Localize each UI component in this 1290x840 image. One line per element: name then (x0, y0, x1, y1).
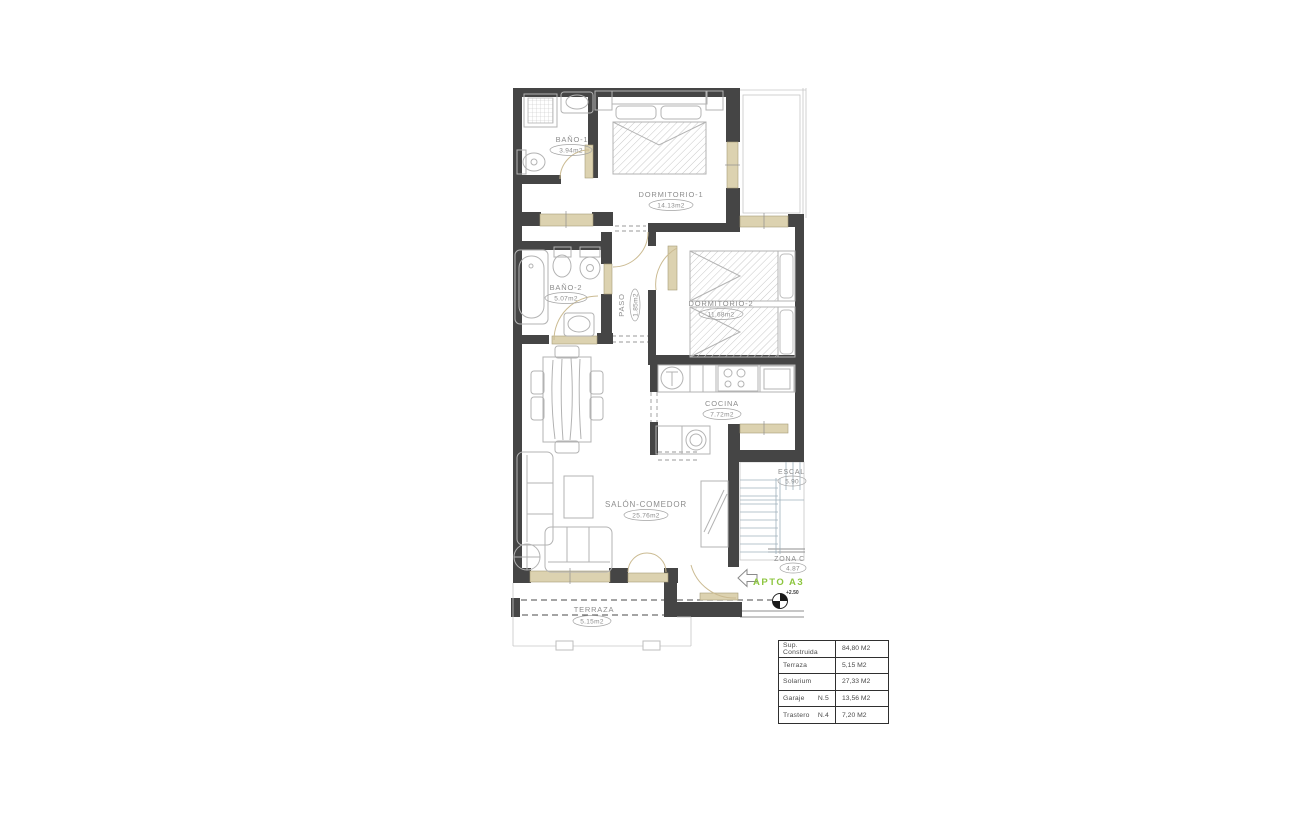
cocina-fixtures (656, 365, 795, 454)
row-label-text: Terraza (783, 662, 807, 669)
svg-text:DORMITORIO-1: DORMITORIO-1 (639, 190, 704, 199)
room-label-zona-comun: ZONA C 4.87 (774, 556, 806, 573)
row-label-text: Solarium (783, 678, 811, 685)
row-sublabel: N.5 (818, 695, 831, 702)
table-row: Terraza 5,15 M2 (779, 658, 888, 675)
row-label: GarajeN.5 (779, 691, 836, 707)
svg-text:14.13m2: 14.13m2 (657, 203, 684, 210)
svg-text:DORMITORIO-2: DORMITORIO-2 (689, 299, 754, 308)
apartment-label: APTO A3 (753, 577, 804, 588)
salon-furniture (514, 346, 728, 572)
table-row: GarajeN.5 13,56 M2 (779, 691, 888, 708)
svg-text:1.85m2: 1.85m2 (633, 293, 640, 317)
room-label-paso: PASO 1.85m2 (617, 289, 640, 321)
table-row: Sup. Construida 84,80 M2 (779, 641, 888, 658)
svg-text:ESCAL: ESCAL (778, 469, 805, 476)
row-label-text: Trastero (783, 712, 810, 719)
dorm1-bed (595, 91, 723, 174)
svg-text:COCINA: COCINA (705, 399, 739, 408)
room-label-salon: SALÓN-COMEDOR 25.76m2 (605, 500, 687, 521)
row-sublabel: N.4 (818, 712, 831, 719)
table-row: TrasteroN.4 7,20 M2 (779, 707, 888, 723)
svg-text:BAÑO-1: BAÑO-1 (556, 135, 589, 144)
room-label-cocina: COCINA 7.72m2 (703, 399, 741, 420)
row-value: 27,33 M2 (836, 674, 888, 690)
floor-plan-page: +2.50 BAÑO-1 3.94m2 DORMITORIO-1 14.13m2… (0, 0, 1290, 840)
windows-and-doors (530, 142, 788, 600)
svg-text:5.15m2: 5.15m2 (580, 619, 604, 626)
row-label-text: Garaje (783, 695, 805, 702)
row-value: 13,56 M2 (836, 691, 888, 707)
svg-text:PASO: PASO (617, 293, 626, 316)
floor-plan-drawing: +2.50 BAÑO-1 3.94m2 DORMITORIO-1 14.13m2… (0, 0, 1290, 840)
svg-text:BAÑO-2: BAÑO-2 (550, 283, 583, 292)
svg-text:7.72m2: 7.72m2 (710, 412, 734, 419)
row-value: 5,15 M2 (836, 658, 888, 674)
room-label-bano2: BAÑO-2 5.07m2 (545, 283, 587, 304)
svg-text:TERRAZA: TERRAZA (574, 605, 615, 614)
svg-text:3.94m2: 3.94m2 (559, 148, 583, 155)
svg-text:4.87: 4.87 (786, 566, 800, 573)
row-label: Solarium (779, 674, 836, 690)
svg-text:SALÓN-COMEDOR: SALÓN-COMEDOR (605, 500, 687, 509)
svg-text:11.68m2: 11.68m2 (708, 312, 735, 319)
row-label: Terraza (779, 658, 836, 674)
svg-text:ZONA C: ZONA C (774, 556, 805, 563)
level-marker: +2.50 (773, 590, 799, 609)
bano1-fixtures (517, 92, 593, 174)
room-labels: BAÑO-1 3.94m2 DORMITORIO-1 14.13m2 BAÑO-… (545, 135, 806, 627)
svg-text:5.90: 5.90 (785, 479, 799, 486)
svg-text:5.07m2: 5.07m2 (554, 296, 578, 303)
row-label: TrasteroN.4 (779, 707, 836, 723)
room-label-terraza: TERRAZA 5.15m2 (573, 605, 614, 627)
room-label-escalera: ESCAL 5.90 (778, 469, 806, 486)
level-value: +2.50 (786, 590, 799, 596)
row-value: 84,80 M2 (836, 641, 888, 657)
svg-text:25.76m2: 25.76m2 (632, 513, 659, 520)
table-row: Solarium 27,33 M2 (779, 674, 888, 691)
row-label-text: Sup. Construida (783, 642, 829, 656)
row-value: 7,20 M2 (836, 707, 888, 723)
row-label: Sup. Construida (779, 641, 836, 657)
area-summary-table: Sup. Construida 84,80 M2 Terraza 5,15 M2… (778, 640, 889, 724)
room-label-dormitorio1: DORMITORIO-1 14.13m2 (639, 190, 704, 211)
